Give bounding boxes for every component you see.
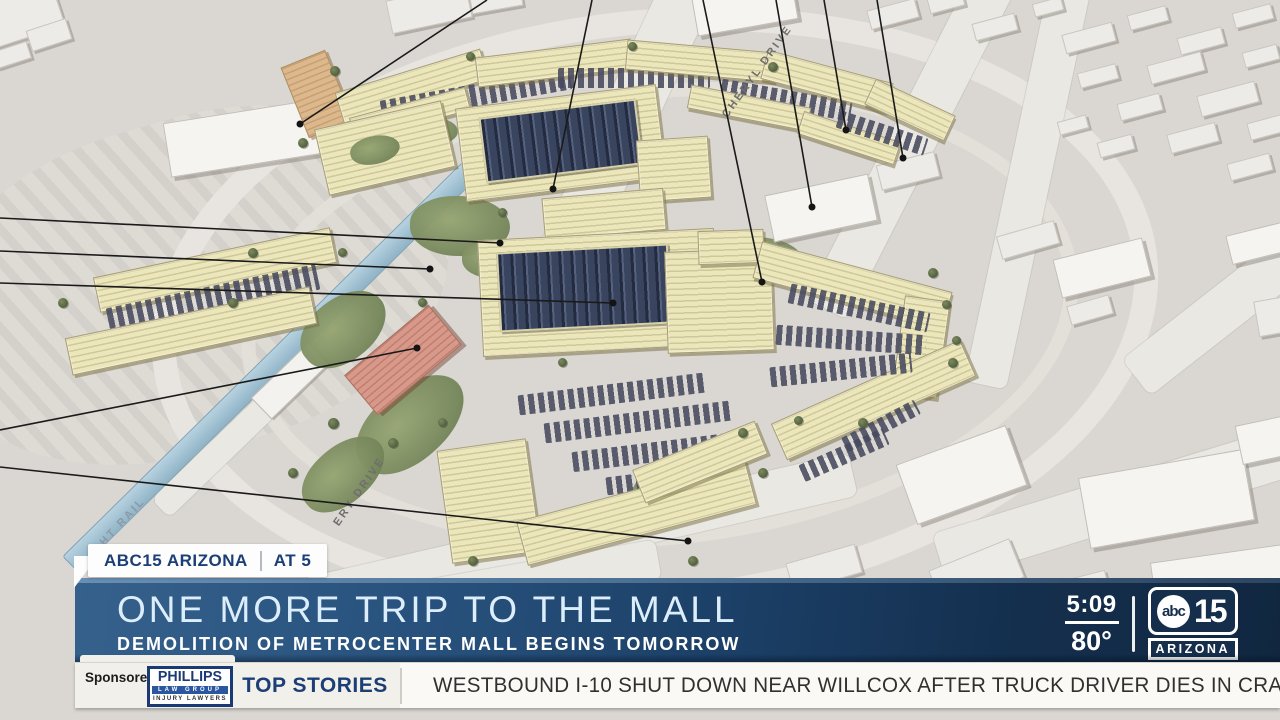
channel-number: 15: [1194, 595, 1226, 627]
badge-divider: [260, 551, 262, 571]
existing-building: [1146, 51, 1205, 85]
existing-building: [1235, 411, 1280, 465]
existing-building: [1127, 5, 1170, 31]
sponsor-logo: PHILLIPS LAW GROUP INJURY LAWYERS: [147, 666, 233, 707]
banner-right-block: 5:09 80° abc 15 ARIZONA: [1065, 587, 1239, 660]
tree: [952, 336, 961, 345]
tree: [858, 418, 868, 428]
tree: [288, 468, 298, 478]
tree: [558, 358, 567, 367]
headline: ONE MORE TRIP TO THE MALL: [117, 591, 740, 628]
tree: [628, 42, 637, 51]
tree: [468, 556, 478, 566]
existing-building: [1077, 63, 1120, 89]
tree: [688, 556, 698, 566]
tree: [758, 468, 768, 478]
badge-station-label: ABC15 ARIZONA: [104, 551, 248, 571]
station-badge: ABC15 ARIZONA AT 5: [88, 544, 327, 577]
existing-building: [1242, 44, 1280, 69]
headline-block: ONE MORE TRIP TO THE MALL DEMOLITION OF …: [117, 591, 740, 655]
ticker-section-label: TOP STORIES: [235, 674, 395, 698]
ticker-headline: WESTBOUND I-10 SHUT DOWN NEAR WILLCOX AF…: [433, 674, 1280, 698]
vertical-divider: [1132, 596, 1135, 652]
existing-building: [1097, 134, 1136, 159]
tree: [498, 208, 507, 217]
tree: [58, 298, 68, 308]
tree: [330, 66, 340, 76]
existing-building: [1232, 3, 1275, 29]
tree: [928, 268, 938, 278]
clock: 5:09: [1065, 593, 1119, 624]
tree: [794, 416, 803, 425]
sponsor-name: PHILLIPS: [154, 670, 226, 684]
sponsor-subtitle: LAW GROUP: [152, 686, 228, 694]
existing-building: [866, 0, 919, 30]
existing-building: [468, 0, 523, 14]
ticker-divider: [400, 668, 402, 704]
abc15-logo: abc 15 ARIZONA: [1148, 587, 1238, 660]
sponsor-tagline: INJURY LAWYERS: [152, 695, 228, 703]
tree: [418, 298, 427, 307]
time-temp-block: 5:09 80°: [1065, 593, 1119, 655]
existing-building: [385, 0, 472, 34]
tree: [466, 52, 475, 61]
abc15-logo-box: abc 15: [1148, 587, 1238, 635]
tree: [328, 418, 339, 429]
temperature: 80°: [1071, 628, 1112, 655]
tree: [438, 418, 447, 427]
planned-building: [697, 229, 764, 265]
tree: [298, 138, 308, 148]
existing-building: [1196, 81, 1260, 118]
tree: [228, 298, 238, 308]
subheadline: DEMOLITION OF METROCENTER MALL BEGINS TO…: [117, 634, 740, 655]
tree: [388, 438, 398, 448]
tree: [948, 358, 958, 368]
lower-third-banner: ONE MORE TRIP TO THE MALL DEMOLITION OF …: [75, 578, 1280, 662]
news-ticker: Sponsored by: PHILLIPS LAW GROUP INJURY …: [75, 662, 1280, 708]
existing-building: [1166, 122, 1219, 154]
existing-building: [1246, 113, 1280, 141]
existing-building: [1176, 26, 1225, 55]
logo-region-label: ARIZONA: [1148, 638, 1238, 660]
tree: [248, 248, 258, 258]
tree: [738, 428, 748, 438]
tv-frame: CHERYL DRIVE ERY DRIVE LIGHT RAIL ABC15 …: [0, 0, 1280, 720]
existing-building: [1116, 93, 1163, 122]
badge-program-label: AT 5: [274, 551, 312, 571]
abc-network-icon: abc: [1157, 595, 1190, 628]
existing-building: [1078, 449, 1255, 549]
tree: [942, 300, 951, 309]
tree: [338, 248, 347, 257]
existing-building: [1253, 295, 1280, 337]
existing-building: [1226, 153, 1273, 182]
solar-panel-roof: [496, 244, 672, 333]
